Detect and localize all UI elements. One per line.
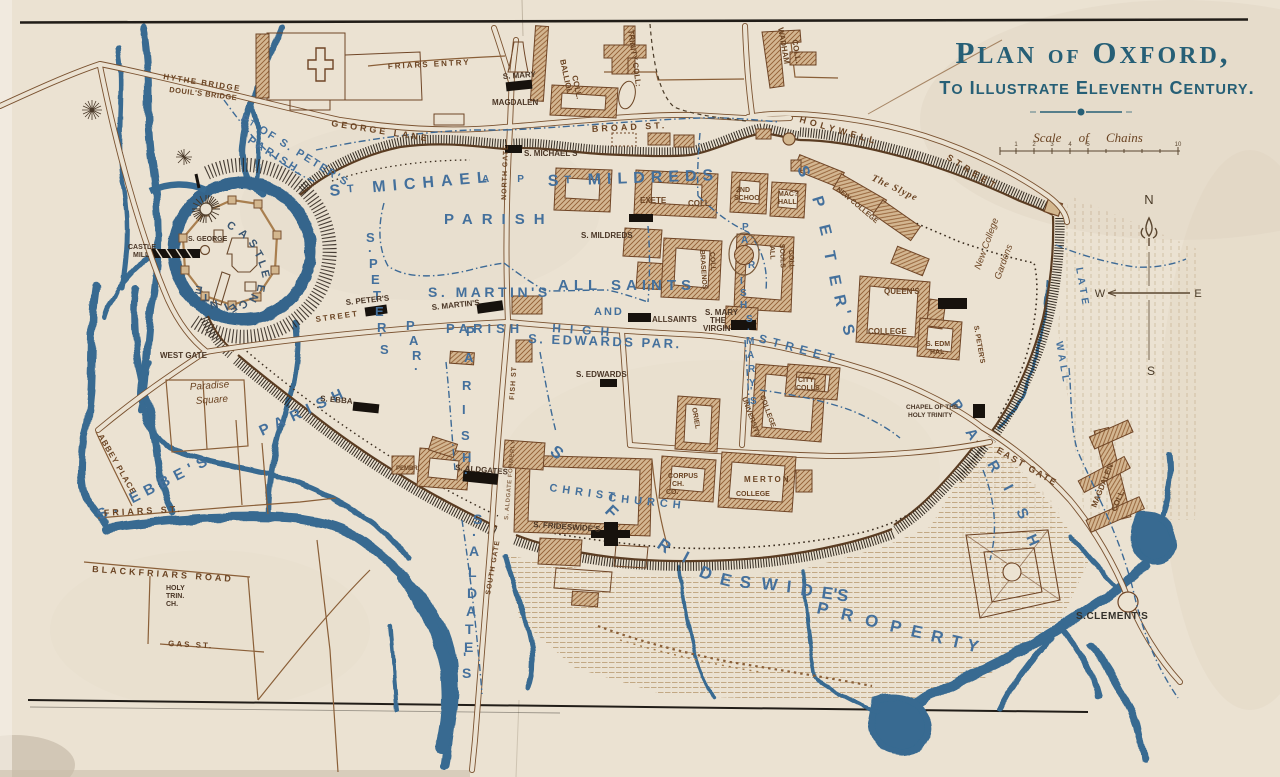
svg-text:S. EDM: S. EDM	[926, 341, 950, 348]
svg-text:S. MILDREDS: S. MILDREDS	[581, 231, 633, 240]
svg-text:COLLEGE: COLLEGE	[868, 327, 907, 336]
svg-text:S. GEORGE: S. GEORGE	[188, 236, 228, 243]
svg-text:HALL: HALL	[778, 199, 797, 206]
svg-text:Square: Square	[195, 394, 228, 407]
svg-text:PARISH: PARISH	[444, 211, 554, 228]
svg-text:HAL: HAL	[930, 349, 945, 356]
svg-text:PARISH: PARISH	[446, 321, 524, 336]
svg-text:MILL: MILL	[133, 252, 150, 259]
svg-text:SCHOO: SCHOO	[734, 195, 760, 202]
svg-text:MAC?: MAC?	[778, 191, 798, 198]
svg-text:W: W	[1095, 288, 1106, 300]
svg-text:PEMBR.: PEMBR.	[396, 466, 420, 472]
svg-text:CH.: CH.	[166, 601, 178, 608]
svg-text:S. MICHAEL'S: S. MICHAEL'S	[524, 149, 578, 158]
svg-text:N: N	[1144, 192, 1153, 207]
svg-text:T: T	[202, 291, 209, 303]
svg-text:CASTLE: CASTLE	[128, 244, 156, 251]
svg-text:10: 10	[1175, 142, 1182, 148]
svg-text:EXETE: EXETE	[640, 196, 667, 205]
svg-text:2ND: 2ND	[736, 187, 750, 194]
svg-text:WEST GATE: WEST GATE	[160, 351, 208, 360]
svg-text:CITY: CITY	[798, 377, 814, 384]
svg-text:S. MARTIN'S: S. MARTIN'S	[428, 284, 551, 300]
svg-text:MERTON: MERTON	[744, 475, 791, 484]
svg-text:MAGDALEN: MAGDALEN	[492, 98, 538, 107]
svg-text:HOLY: HOLY	[166, 585, 185, 592]
svg-text:E: E	[1194, 288, 1201, 300]
svg-text:ALL: ALL	[768, 246, 775, 261]
svg-text:CH.: CH.	[672, 481, 684, 488]
svg-text:COLL: COLL	[787, 250, 795, 270]
svg-text:COLL: COLL	[708, 252, 716, 272]
svg-text:AND: AND	[594, 306, 624, 318]
svg-text:QUEEN'S: QUEEN'S	[884, 287, 920, 296]
svg-text:S.CLEMENT'S: S.CLEMENT'S	[1076, 611, 1148, 622]
svg-text:VIRGIN: VIRGIN	[703, 324, 731, 333]
svg-text:HOLY TRINITY: HOLY TRINITY	[908, 412, 953, 419]
svg-text:CHAPEL OF THE: CHAPEL OF THE	[906, 404, 959, 411]
svg-text:ALLSAINTS: ALLSAINTS	[652, 315, 698, 324]
svg-text:CORPUS: CORPUS	[668, 473, 698, 480]
svg-text:W: W	[761, 574, 780, 595]
svg-text:ALL SAINTS: ALL SAINTS	[558, 277, 696, 294]
svg-text:S. EDWARDS: S. EDWARDS	[576, 370, 627, 379]
svg-text:COLLS: COLLS	[796, 385, 820, 392]
svg-text:COLLEGE: COLLEGE	[736, 491, 770, 498]
svg-text:S: S	[1147, 364, 1155, 378]
svg-text:SOULS: SOULS	[778, 244, 786, 269]
svg-text:TRIN.: TRIN.	[166, 593, 184, 600]
svg-text:AP: AP	[482, 174, 552, 185]
svg-text:D: D	[800, 580, 815, 600]
svg-text:CO.: CO.	[666, 489, 679, 496]
svg-text:COLL.: COLL.	[688, 199, 712, 208]
